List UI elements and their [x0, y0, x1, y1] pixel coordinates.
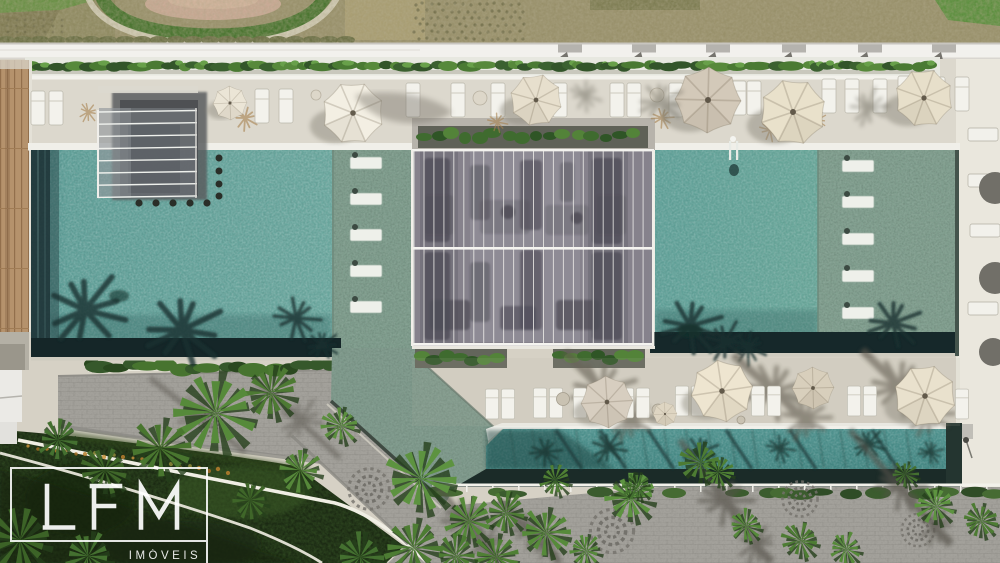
svg-text:IMÓVEIS: IMÓVEIS	[129, 549, 201, 562]
